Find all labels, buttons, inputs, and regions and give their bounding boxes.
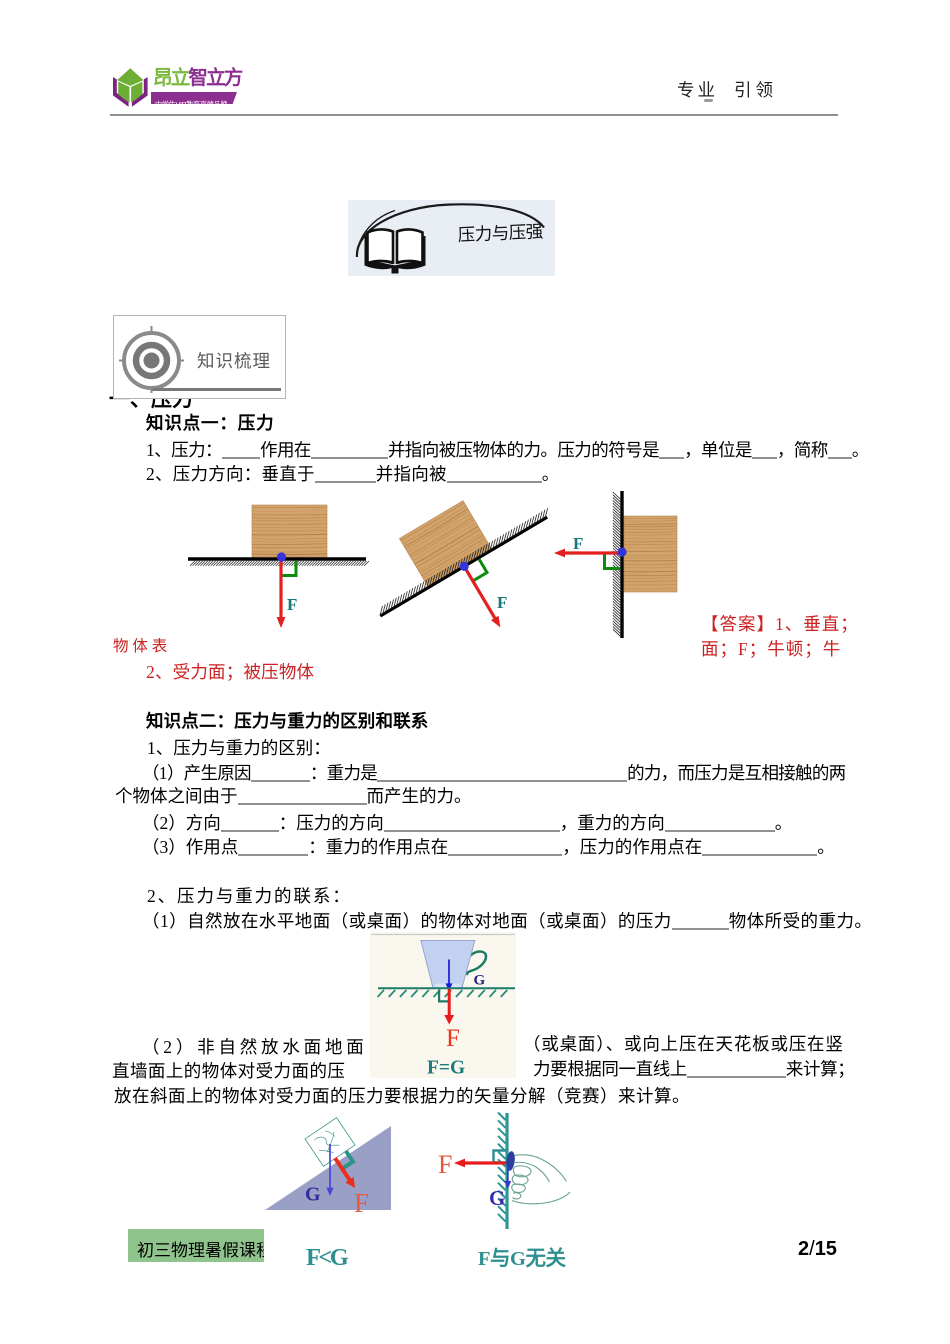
svg-text:G: G: [305, 1184, 321, 1206]
svg-text:F: F: [446, 1025, 460, 1052]
svg-text:G: G: [474, 973, 486, 989]
svg-text:G: G: [489, 1186, 505, 1210]
svg-text:F: F: [354, 1188, 369, 1218]
svg-text:F: F: [497, 593, 507, 612]
svg-text:F=G: F=G: [427, 1058, 465, 1079]
svg-text:F: F: [287, 595, 297, 614]
svg-text:F: F: [573, 534, 583, 553]
svg-text:压力与压强: 压力与压强: [457, 221, 543, 245]
svg-text:知识梳理: 知识梳理: [197, 351, 271, 371]
svg-text:F: F: [438, 1150, 452, 1179]
